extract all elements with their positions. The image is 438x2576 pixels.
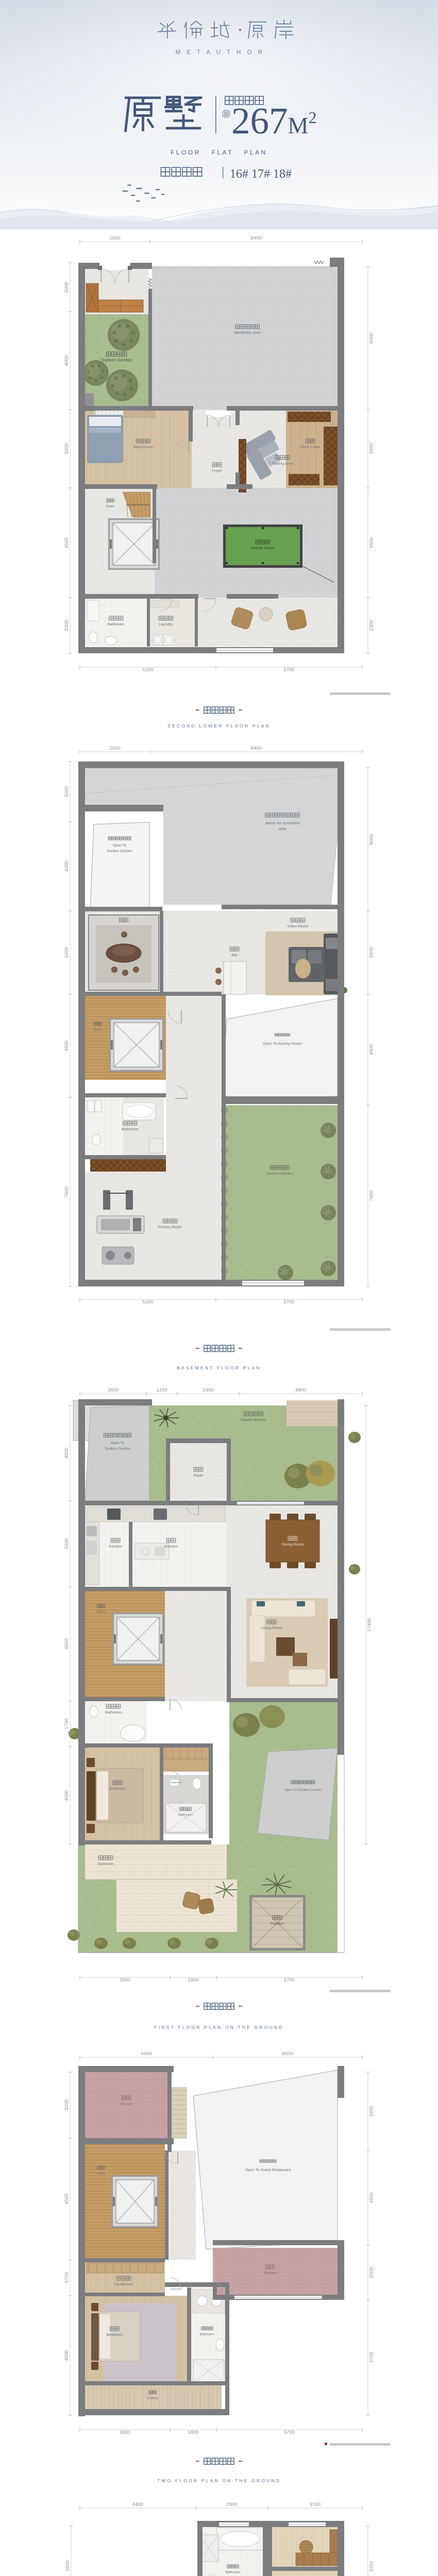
svg-text:Sunken Garden: Sunken Garden (266, 1171, 294, 1176)
svg-text:3200: 3200 (64, 443, 70, 454)
svg-text:16# 17# 18#: 16# 17# 18# (230, 167, 292, 181)
svg-text:Wine Cellar: Wine Cellar (300, 445, 321, 449)
svg-text:3200: 3200 (64, 2099, 70, 2110)
svg-text:area: area (279, 827, 286, 831)
svg-text:3500: 3500 (120, 1977, 130, 1983)
svg-text:5700: 5700 (283, 1299, 294, 1305)
svg-text:4400: 4400 (141, 2051, 151, 2057)
svg-text:Living Room: Living Room (261, 1625, 282, 1630)
svg-text:4500: 4500 (369, 1044, 375, 1055)
svg-text:8400: 8400 (250, 745, 261, 751)
svg-text:4000: 4000 (64, 355, 70, 366)
svg-text:Tasting Area: Tasting Area (272, 461, 293, 466)
svg-text:1700: 1700 (64, 2272, 70, 2283)
svg-text:Laundry: Laundry (159, 622, 173, 626)
svg-text:4400: 4400 (132, 2502, 143, 2507)
svg-text:7600: 7600 (64, 1187, 70, 1197)
svg-text:8400: 8400 (250, 235, 261, 241)
svg-text:4500: 4500 (64, 1040, 70, 1051)
svg-text:M E T A U T H O R: M E T A U T H O R (176, 49, 265, 56)
svg-text:3700: 3700 (369, 2352, 375, 2363)
svg-text:Terrace: Terrace (120, 2102, 132, 2106)
svg-text:Foyer: Foyer (212, 468, 222, 473)
svg-text:4000: 4000 (64, 861, 70, 872)
svg-text:Pavilion: Pavilion (271, 1921, 284, 1926)
svg-text:6000: 6000 (369, 834, 375, 844)
svg-text:Gallery: Gallery (147, 2397, 158, 2400)
svg-text:2000: 2000 (369, 2267, 375, 2278)
svg-text:Bedroom: Bedroom (107, 2332, 122, 2337)
svg-text:3200: 3200 (64, 1538, 70, 1549)
svg-text:2900: 2900 (226, 2502, 237, 2507)
svg-text:Bathroom: Bathroom (200, 2333, 214, 2336)
svg-text:Stairs: Stairs (106, 505, 115, 509)
svg-text:FLOOR FLAT PLAN: FLOOR FLAT PLAN (171, 149, 267, 156)
svg-text:Bathroom: Bathroom (122, 1127, 139, 1131)
svg-text:1800: 1800 (188, 1977, 198, 1983)
svg-text:2000: 2000 (64, 786, 70, 797)
svg-text:2300: 2300 (369, 620, 375, 631)
svg-text:5700: 5700 (284, 2430, 295, 2435)
svg-text:House Garden: House Garden (241, 1417, 266, 1422)
svg-text:Stairs: Stairs (97, 1611, 106, 1614)
svg-text:4000: 4000 (64, 1790, 70, 1801)
svg-text:Open To Guest Restaurant: Open To Guest Restaurant (245, 2167, 291, 2172)
svg-text:Dining Room: Dining Room (281, 1542, 304, 1547)
svg-text:3200: 3200 (369, 2106, 375, 2116)
svg-text:3200: 3200 (369, 947, 375, 958)
svg-text:Sunken Garden: Sunken Garden (107, 850, 132, 853)
svg-text:5300: 5300 (142, 667, 153, 673)
svg-text:Bathroom: Bathroom (105, 1710, 122, 1715)
svg-text:2600: 2600 (109, 745, 120, 751)
svg-text:Modifiable area: Modifiable area (234, 330, 261, 335)
svg-text:5700: 5700 (284, 1977, 295, 1983)
svg-text:2400: 2400 (203, 1387, 213, 1393)
svg-text:3200: 3200 (64, 947, 70, 958)
svg-text:4500: 4500 (64, 1638, 70, 1649)
svg-text:2600: 2600 (108, 1387, 119, 1393)
svg-text:Bar: Bar (231, 953, 238, 957)
svg-text:Open To: Open To (111, 1442, 124, 1445)
svg-text:4500: 4500 (369, 2192, 375, 2203)
svg-text:4000: 4000 (64, 1448, 70, 1459)
svg-text:4800: 4800 (295, 1387, 306, 1393)
svg-text:FIRST FLOOR PLAN ON THE GROUND: FIRST FLOOR PLAN ON THE GROUND (154, 2025, 283, 2030)
svg-text:4500: 4500 (64, 2193, 70, 2204)
svg-text:3500: 3500 (120, 2430, 130, 2435)
svg-text:SECOND LOWER FLOOR PLAN: SECOND LOWER FLOOR PLAN (167, 723, 271, 728)
svg-text:Kitchen: Kitchen (164, 1544, 177, 1549)
svg-text:3200: 3200 (369, 2561, 375, 2572)
svg-text:Sunken Garden: Sunken Garden (101, 358, 132, 363)
svg-text:Kitchen: Kitchen (109, 1544, 122, 1549)
svg-text:Bathroom: Bathroom (178, 1814, 193, 1817)
svg-text:TWO FLOOR PLAN ON THE GROUND: TWO FLOOR PLAN ON THE GROUND (157, 2478, 281, 2483)
svg-text:2000: 2000 (64, 282, 70, 293)
svg-text:Stairs: Stairs (97, 2172, 106, 2176)
svg-text:4000: 4000 (64, 2350, 70, 2361)
svg-text:5700: 5700 (283, 667, 294, 673)
svg-text:Open To: Open To (113, 844, 126, 848)
svg-text:Terrace: Terrace (263, 2270, 276, 2275)
svg-text:1200: 1200 (156, 1387, 167, 1393)
svg-text:2600: 2600 (109, 235, 120, 241)
svg-text:Activity Room: Activity Room (251, 546, 275, 550)
svg-text:4500: 4500 (64, 537, 70, 548)
svg-text:6600: 6600 (282, 2051, 293, 2057)
svg-text:Stairs: Stairs (94, 1028, 103, 1032)
svg-text:Fitness Room: Fitness Room (158, 1225, 182, 1229)
svg-text:Sunroom: Sunroom (98, 1861, 113, 1866)
svg-text:Video Room: Video Room (287, 924, 308, 928)
svg-text:3200: 3200 (369, 443, 375, 454)
svg-text:17400: 17400 (367, 1618, 373, 1632)
svg-text:Above the remodeled: Above the remodeled (265, 822, 300, 825)
svg-text:Open To Activity Room: Open To Activity Room (263, 1041, 302, 1046)
svg-text:1700: 1700 (64, 1718, 70, 1729)
svg-text:5300: 5300 (142, 1299, 153, 1305)
svg-text:7600: 7600 (369, 1190, 375, 1201)
svg-text:Sunken Garden: Sunken Garden (105, 1447, 130, 1451)
svg-text:BASEMENT FLOOR PLAN: BASEMENT FLOOR PLAN (177, 1365, 261, 1370)
svg-text:6000: 6000 (369, 333, 375, 344)
svg-text:3700: 3700 (310, 2502, 321, 2507)
svg-text:1800: 1800 (188, 2430, 198, 2435)
svg-text:4500: 4500 (369, 537, 375, 548)
svg-text:2300: 2300 (64, 620, 70, 631)
svg-text:Bedroom: Bedroom (110, 1786, 125, 1791)
svg-text:Maid Room: Maid Room (133, 445, 153, 449)
svg-text:Bathroom: Bathroom (226, 2571, 240, 2574)
svg-text:3200: 3200 (65, 2561, 71, 2571)
svg-text:Cloakroom: Cloakroom (114, 2282, 133, 2286)
svg-text:Open To Sunken Garden: Open To Sunken Garden (284, 1788, 322, 1792)
svg-text:Bathroom: Bathroom (108, 622, 125, 626)
svg-text:Foyer: Foyer (193, 1473, 204, 1478)
